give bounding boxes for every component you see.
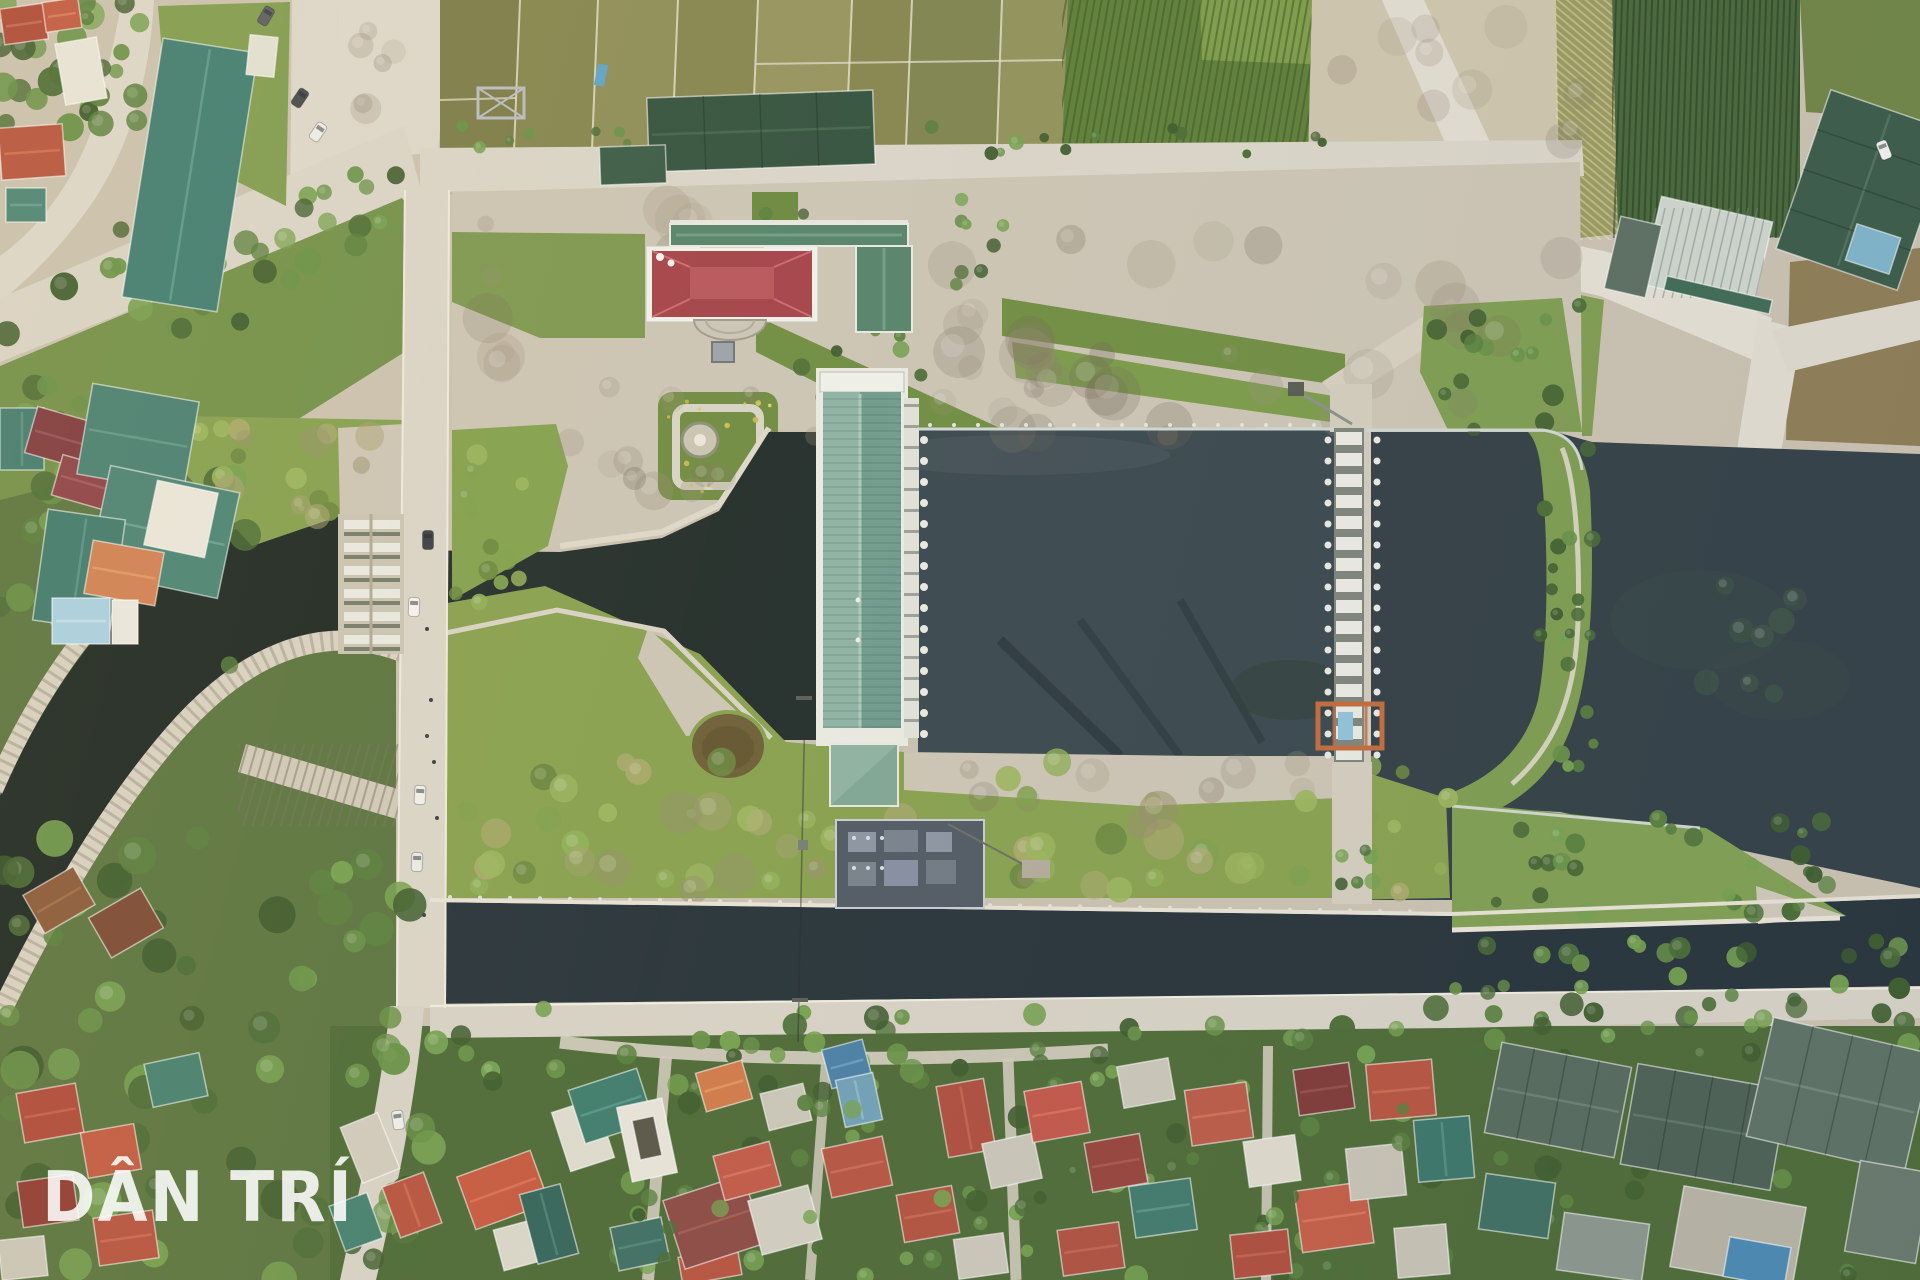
aerial-photo: DÂN TRÍ	[0, 0, 1920, 1280]
dantri-watermark: DÂN TRÍ	[42, 1156, 354, 1238]
sunlight-overlay	[0, 0, 1920, 1280]
